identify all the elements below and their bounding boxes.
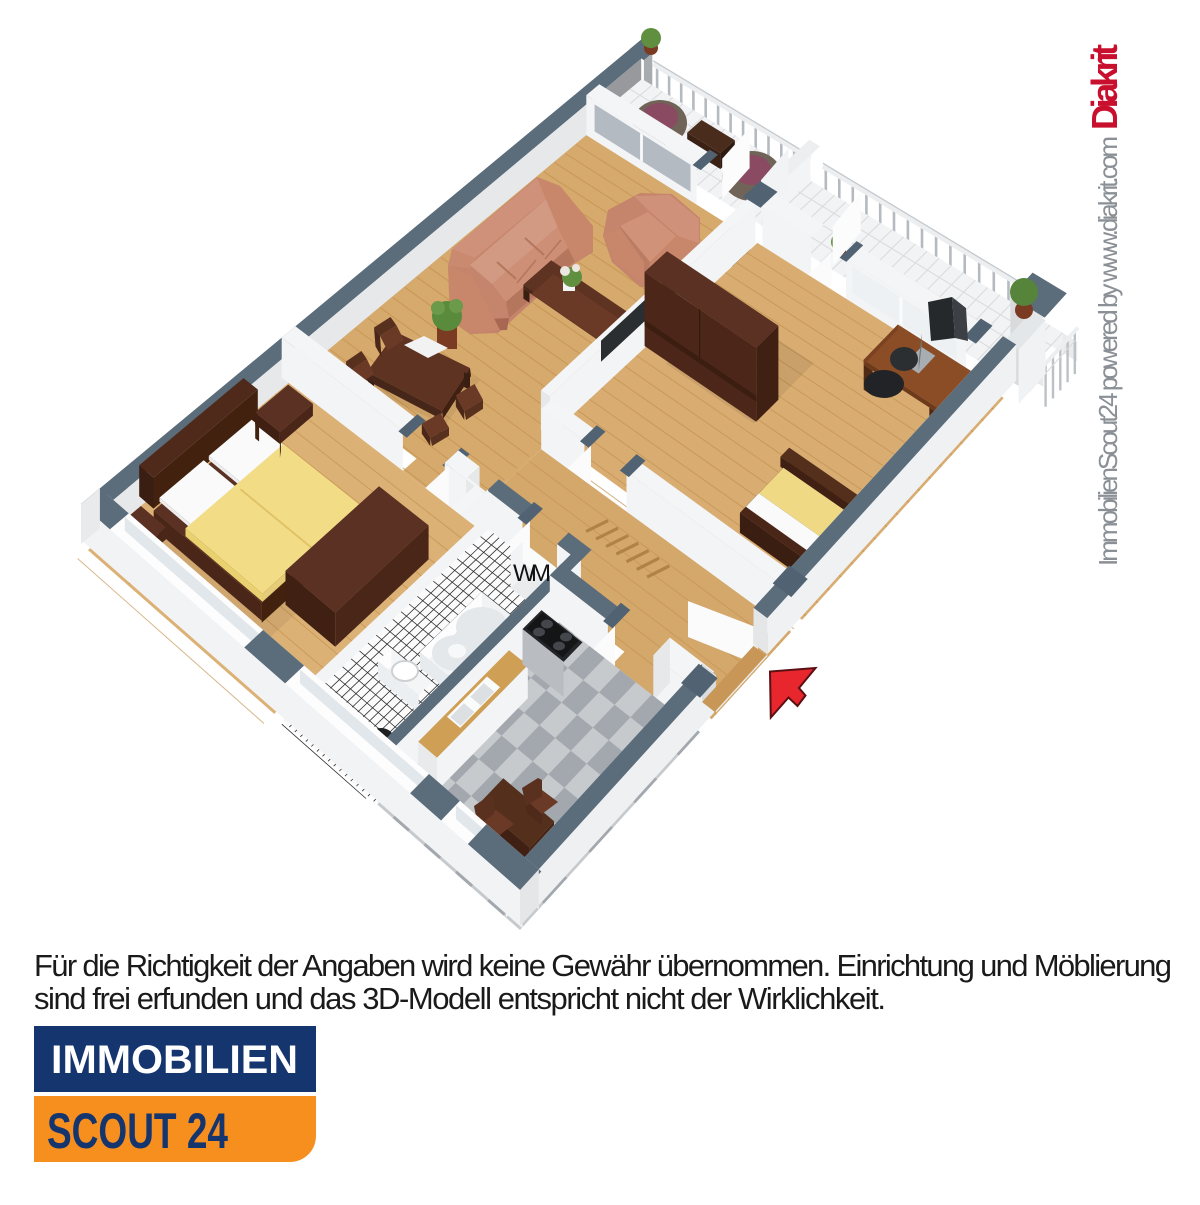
svg-text:sind frei erfunden und das 3D-: sind frei erfunden und das 3D-Modell ent… (34, 981, 886, 1016)
svg-text:WM: WM (513, 560, 551, 587)
svg-text:SCOUT 24: SCOUT 24 (47, 1103, 228, 1159)
svg-text:Diakrit: Diakrit (1084, 44, 1125, 130)
svg-text:IMMOBILIEN: IMMOBILIEN (51, 1038, 298, 1082)
svg-text:ImmobilienScout24 powered by w: ImmobilienScout24 powered by www.diakrit… (1093, 136, 1123, 566)
svg-text:Für die Richtigkeit der Angabe: Für die Richtigkeit der Angaben wird kei… (34, 948, 1172, 983)
